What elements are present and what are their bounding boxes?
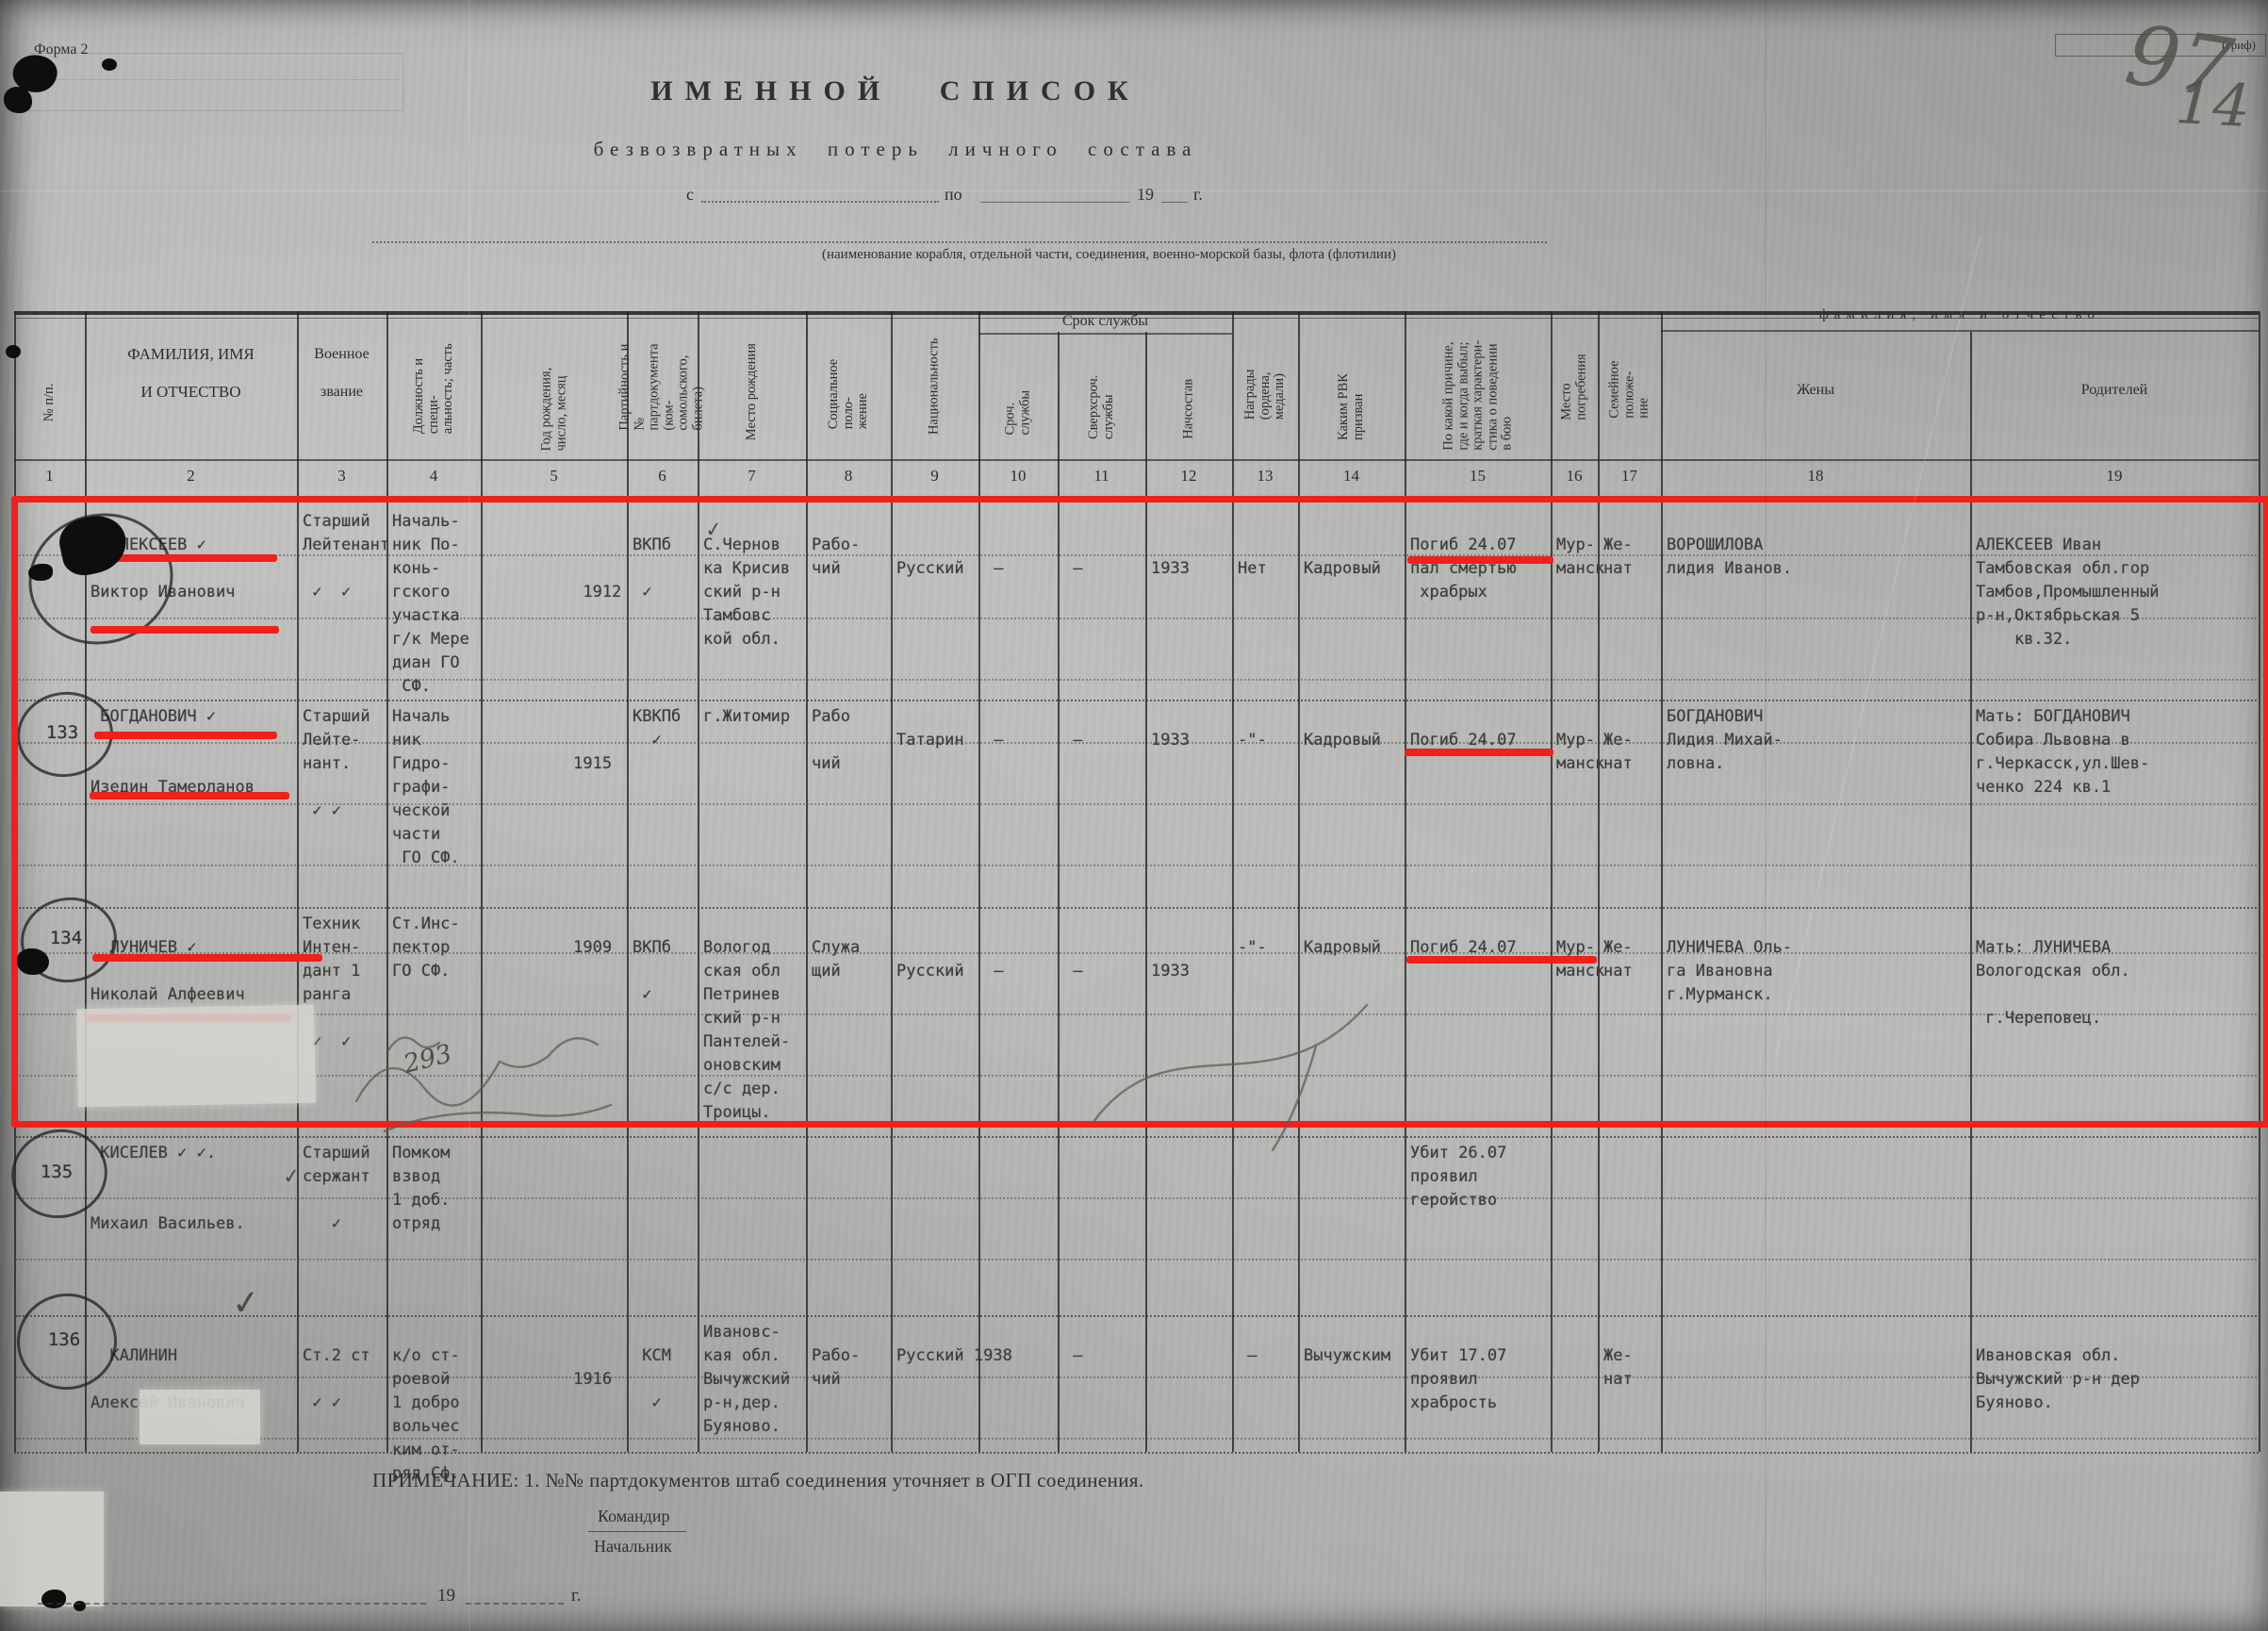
column-header: Должность и специ- альность; часть — [386, 318, 481, 455]
handwritten-signature — [330, 990, 1423, 1178]
table-cell: Же- нат — [1603, 1321, 1633, 1392]
table-cell: КСМ ✓ — [633, 1321, 671, 1415]
column-header: Сверхсроч. службы — [1058, 336, 1145, 455]
table-cell: 1916 — [486, 1321, 612, 1392]
column-header: Место рождения — [698, 318, 806, 455]
group-header-srok: Срок службы — [978, 312, 1232, 331]
column-header-label: Место рождения — [745, 333, 760, 441]
ink-blot — [102, 58, 117, 71]
bottom-date-year: 19 — [437, 1586, 455, 1606]
table-line — [14, 459, 2259, 461]
table-cell: Убит 17.07 проявил храбрость — [1410, 1321, 1506, 1415]
table-cell: Рабо- чий — [812, 1321, 860, 1392]
column-number: 15 — [1405, 467, 1551, 486]
punch-hole — [17, 948, 49, 975]
column-header: № п/п. — [14, 318, 85, 455]
bottom-date-line2 — [466, 1603, 564, 1605]
column-header: Награды (ордена, медали) — [1232, 318, 1298, 455]
table-line — [14, 1452, 2259, 1454]
table-cell: Вычужским — [1304, 1321, 1390, 1368]
column-header: ФАМИЛИЯ, ИМЯ И ОТЧЕСТВО — [85, 345, 297, 402]
column-header-label: Семейное положе- ние — [1607, 355, 1652, 419]
tape-patch — [76, 1005, 316, 1107]
red-underline — [90, 626, 279, 634]
column-header-label: Награды (ордена, медали) — [1243, 354, 1288, 420]
red-underline — [90, 792, 289, 799]
column-number: 4 — [386, 467, 481, 486]
handwritten-checkmark: ✓ — [230, 1283, 262, 1325]
red-underline — [94, 732, 277, 739]
column-number: 10 — [978, 467, 1058, 486]
ruled-line — [16, 1259, 2257, 1260]
ink-blot — [4, 87, 32, 113]
red-underline — [100, 554, 277, 562]
column-header: Партийность и № партдокумента (ком- сомо… — [627, 318, 698, 455]
column-header-label: Место погребения — [1560, 354, 1589, 420]
table-line — [978, 333, 1232, 335]
column-header-label: Начсостав — [1181, 353, 1196, 439]
column-header-label: Национальность — [928, 338, 943, 436]
column-header: Сроч. службы — [978, 336, 1058, 455]
table-cell: – — [1063, 1321, 1082, 1368]
column-header: Начсостав — [1145, 336, 1232, 455]
footnote: ПРИМЕЧАНИЕ: 1. №№ партдокументов штаб со… — [372, 1469, 1144, 1492]
table-cell: к/о ст- роевой 1 добро вольчес ким от- р… — [392, 1321, 460, 1486]
red-underline — [92, 954, 322, 962]
column-header-label: Каким РВК призван — [1337, 334, 1366, 440]
column-header-label: Партийность и № партдокумента (ком- сомо… — [618, 343, 706, 430]
table-cell: Ст.2 ст ✓ ✓ — [303, 1321, 370, 1415]
column-header: Родителей — [1970, 381, 2259, 400]
table-cell: Ивановс- кая обл. Вычужский р-н,дер. Буя… — [703, 1321, 790, 1439]
punch-hole — [6, 345, 21, 358]
table-cell: Убит 26.07 проявил геройство — [1410, 1142, 1506, 1212]
column-number: 14 — [1298, 467, 1405, 486]
column-number: 6 — [627, 467, 698, 486]
column-number: 16 — [1551, 467, 1598, 486]
column-header-label: По какой причине, где и когда выбыл; кра… — [1441, 322, 1515, 451]
column-header: Год рождения, число, месяц — [481, 318, 627, 455]
column-header-label: Должность и специ- альность; часть — [412, 339, 456, 434]
column-number: 12 — [1145, 467, 1232, 486]
column-header: Место погребения — [1551, 318, 1598, 455]
bottom-date-line — [38, 1603, 426, 1605]
column-number: 3 — [297, 467, 386, 486]
chief-label: Начальник — [594, 1537, 672, 1557]
column-header: По какой причине, где и когда выбыл; кра… — [1405, 318, 1551, 455]
column-number: 1 — [14, 467, 85, 486]
column-header: Военное звание — [297, 345, 386, 402]
column-header-label: Социальное поло- жение — [827, 344, 871, 429]
group-header-fio: фамилия, имя и отчество — [1661, 305, 2259, 324]
column-number: 11 — [1058, 467, 1145, 486]
row-number: 135 — [11, 1161, 102, 1182]
ruled-line — [16, 1315, 2257, 1317]
red-underline — [1406, 956, 1597, 964]
column-header-label: Сверхсроч. службы — [1087, 352, 1116, 439]
column-number: 9 — [891, 467, 978, 486]
bottom-date-g: г. — [571, 1586, 581, 1606]
column-header: Семейное положе- ние — [1598, 318, 1661, 455]
column-number: 5 — [481, 467, 627, 486]
column-number: 13 — [1232, 467, 1298, 486]
ink-blot — [28, 564, 53, 581]
table-cell: Русский 1938 — [896, 1321, 1012, 1368]
table-cell: КИСЕЛЕВ ✓ ✓. Михаил Васильев. — [90, 1142, 245, 1236]
column-number: 17 — [1598, 467, 1661, 486]
scanned-document: Форма 2 (гриф) 97 14 ИМЕННОЙ СПИСОК безв… — [0, 0, 2268, 1631]
column-number: 19 — [1970, 467, 2259, 486]
table-line — [1661, 330, 2259, 332]
column-header: Каким РВК призван — [1298, 318, 1405, 455]
red-underline — [1407, 556, 1553, 564]
signature-divider — [588, 1531, 686, 1532]
column-header-label: Сроч. службы — [1004, 356, 1033, 436]
handwritten-checkmark: ✓ — [282, 1164, 302, 1190]
handwritten-checkmark: ✓ — [704, 518, 724, 543]
tape-patch — [140, 1390, 260, 1444]
column-header: Социальное поло- жение — [806, 318, 891, 455]
row-number: 136 — [17, 1329, 111, 1350]
column-header-label: № п/п. — [42, 352, 58, 422]
column-number: 18 — [1661, 467, 1970, 486]
red-underline — [1405, 749, 1553, 756]
commander-label: Командир — [598, 1507, 669, 1526]
column-header-label: Год рождения, число, месяц — [539, 322, 568, 451]
column-header: Жены — [1661, 381, 1970, 400]
ruled-line — [16, 1438, 2257, 1440]
column-number: 2 — [85, 467, 297, 486]
table-cell: Ивановская обл. Вычужский р-н дер Буянов… — [1976, 1321, 2140, 1415]
table-cell: – — [1238, 1321, 1257, 1368]
ink-blot — [41, 1590, 66, 1608]
column-number: 8 — [806, 467, 891, 486]
column-number: 7 — [698, 467, 806, 486]
casualty-table: Срок службыфамилия, имя и отчество№ п/п.… — [0, 0, 2268, 1631]
column-header: Национальность — [891, 318, 978, 455]
